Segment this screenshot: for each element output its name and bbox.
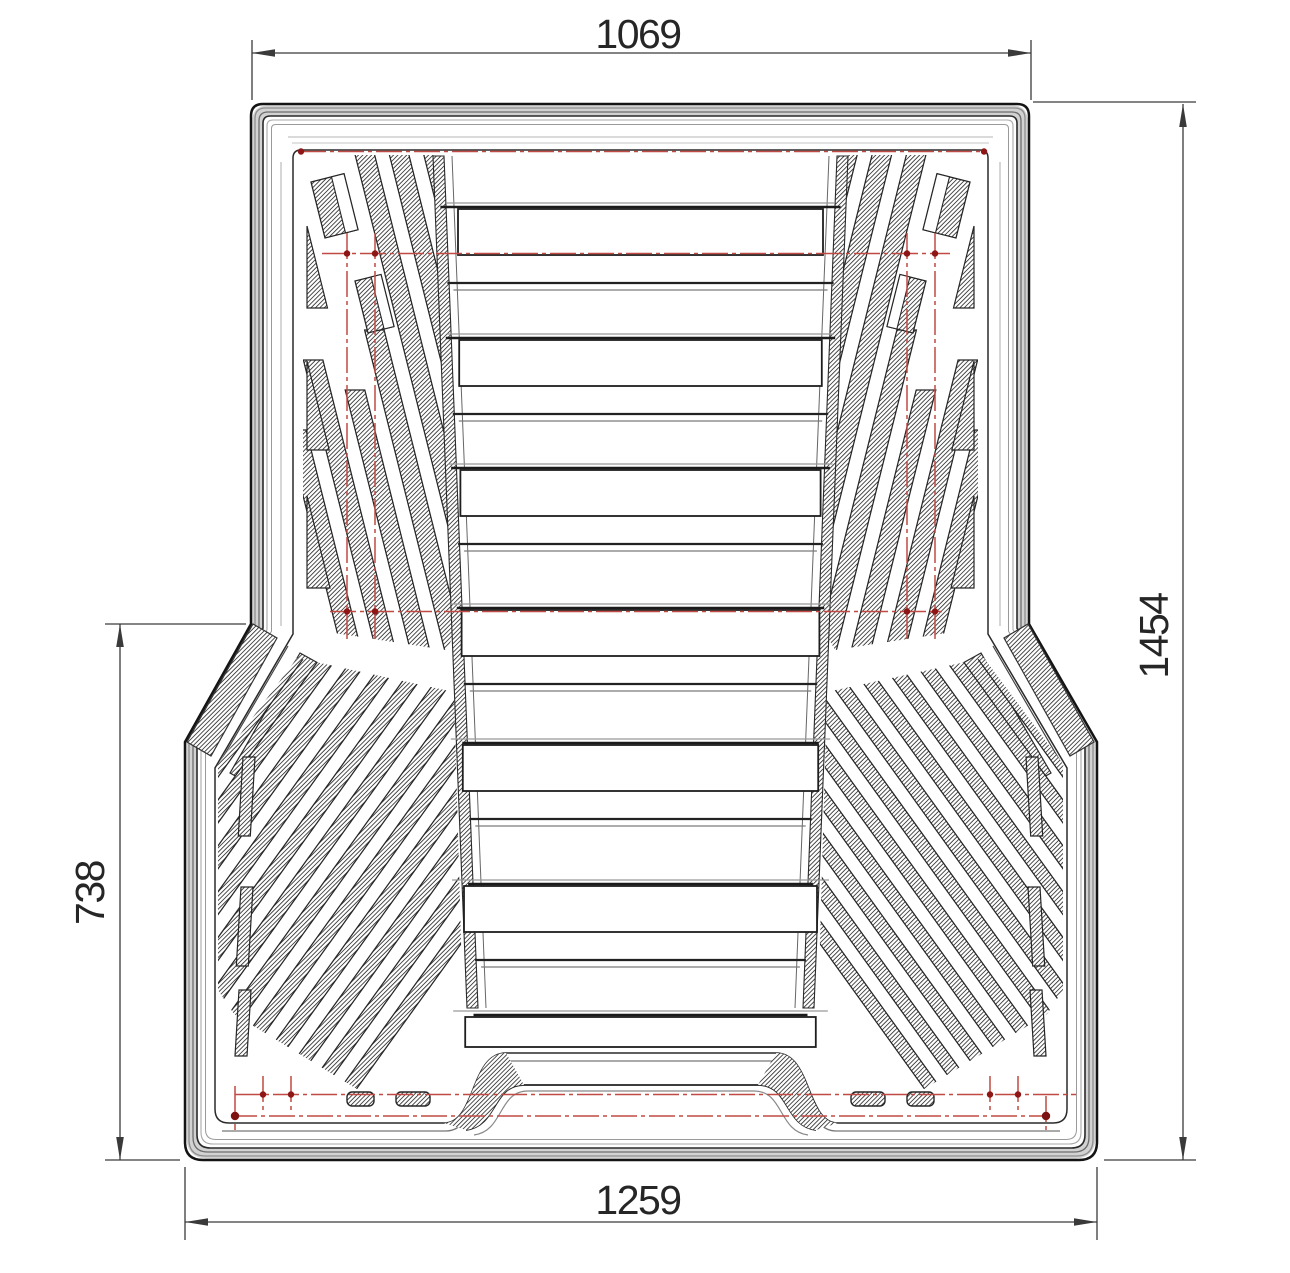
svg-text:1454: 1454 <box>1131 593 1177 679</box>
svg-text:1259: 1259 <box>595 1177 680 1223</box>
svg-text:1069: 1069 <box>595 11 680 57</box>
svg-text:738: 738 <box>67 860 113 925</box>
